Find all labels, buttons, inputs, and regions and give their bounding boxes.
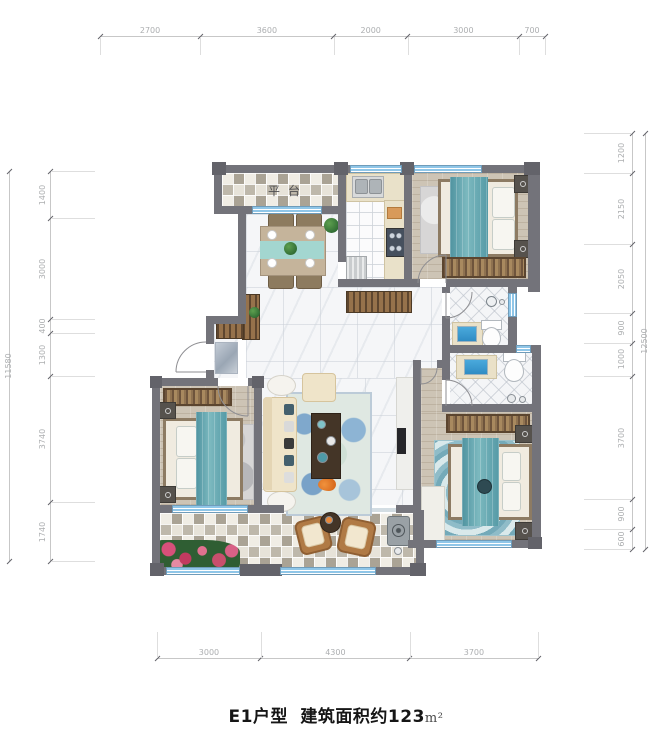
plan-title-area: 建筑面积约123 [300,707,425,727]
dimension-label: 3700 [617,418,627,458]
dimension-label: 2150 [617,189,627,229]
extension-line [51,333,95,334]
extension-line [408,37,409,55]
dimension-label: 2050 [617,259,627,299]
extension-line [519,37,520,55]
dimension-total-label: 12500 [640,319,650,363]
dimension-total-label: 11580 [4,344,14,388]
terrace-label: 平台 [252,182,324,199]
door-swings [0,0,672,747]
bathroom2-door-arc [446,380,472,406]
dimension-label: 3000 [38,249,48,289]
dimension-label: 3000 [443,26,483,36]
extension-line [51,171,95,172]
plan-title: E1户型 建筑面积约123m² [0,702,672,727]
extension-line [545,37,546,55]
extension-line [334,37,335,55]
extension-line [51,561,95,562]
dimension-label: 3700 [454,648,494,658]
extension-line [51,376,95,377]
plan-title-model: E1户型 [229,707,288,727]
dimension-label: 1000 [617,339,627,379]
entry-door-arc [176,342,206,372]
bathroom1-door-arc [446,292,472,318]
extension-line [538,632,539,658]
dimension-label: 1740 [38,512,48,552]
dimension-label: 3600 [247,26,287,36]
dimension-label: 600 [617,519,627,559]
extension-line [261,632,262,658]
dimension-label: 1200 [617,133,627,173]
extension-line [157,632,158,658]
dimension-label: 3000 [189,648,229,658]
dimension-label: 1300 [38,335,48,375]
extension-line [200,37,201,55]
dimension-label: 4300 [315,648,355,658]
dimension-line [157,658,538,659]
extension-line [100,37,101,55]
plan-title-unit: m² [425,711,444,726]
dimension-label: 2000 [351,26,391,36]
extension-line [51,218,95,219]
dimension-label: 2700 [130,26,170,36]
extension-line [51,319,95,320]
extension-line [410,632,411,658]
dimension-label: 700 [512,26,552,36]
bedroom-topright-door-arc [418,255,446,283]
master-door-arc [421,368,437,384]
dimension-line [100,36,545,37]
dimension-label: 3740 [38,419,48,459]
extension-line [584,173,632,174]
dimension-label: 1400 [38,175,48,215]
extension-line [584,244,632,245]
bedroom-bottomleft-door-arc [218,386,248,416]
extension-line [51,502,95,503]
floorplan-canvas: 平台 2700360020003000700300043003700140030… [0,0,672,747]
